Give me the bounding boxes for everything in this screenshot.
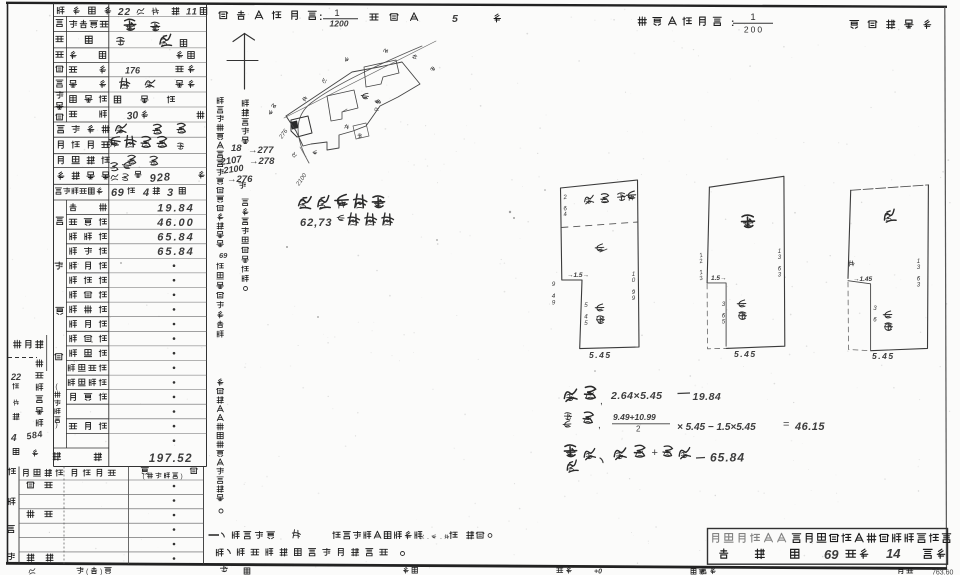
svg-text:(: ( (86, 569, 89, 575)
svg-text:→276: →276 (227, 174, 253, 185)
svg-text:): ) (55, 422, 57, 429)
svg-text::: : (319, 11, 323, 23)
svg-text:5: 5 (584, 302, 588, 309)
svg-text:9: 9 (632, 295, 636, 302)
svg-text:46.00: 46.00 (156, 217, 195, 229)
svg-text:1.5→: 1.5→ (711, 275, 727, 282)
svg-text:69: 69 (219, 251, 228, 260)
svg-text:× 5.45 − 1.5×5.45: × 5.45 − 1.5×5.45 (677, 422, 756, 433)
svg-text:5: 5 (584, 320, 588, 327)
svg-text:62,73: 62,73 (300, 217, 333, 229)
svg-text:276: 276 (278, 128, 290, 141)
svg-text:6: 6 (873, 317, 877, 324)
svg-text:46.15: 46.15 (794, 421, 825, 433)
svg-text:69: 69 (824, 547, 839, 562)
svg-text:65.84: 65.84 (157, 246, 195, 258)
svg-text:5.45: 5.45 (734, 349, 757, 359)
svg-text:,: , (600, 396, 603, 407)
svg-text:176: 176 (125, 66, 141, 76)
svg-text:3: 3 (917, 264, 921, 271)
svg-text:22: 22 (10, 372, 21, 382)
svg-text:4: 4 (142, 187, 149, 199)
svg-text:5.45: 5.45 (872, 351, 895, 361)
svg-text:1: 1 (750, 12, 755, 23)
svg-text:65.84: 65.84 (710, 451, 745, 465)
svg-text:3: 3 (778, 254, 782, 261)
svg-text:1: 1 (334, 8, 339, 19)
svg-text:763.60: 763.60 (932, 570, 954, 575)
svg-text:5: 5 (452, 13, 458, 25)
svg-text:5: 5 (722, 319, 726, 326)
svg-text:19.84: 19.84 (693, 391, 722, 403)
svg-text:65.84: 65.84 (157, 232, 195, 244)
svg-text:+: + (652, 447, 658, 459)
svg-text:→278: →278 (249, 156, 275, 167)
svg-text:0: 0 (632, 277, 636, 284)
svg-text:9: 9 (552, 281, 556, 288)
svg-text:69: 69 (111, 187, 125, 199)
svg-text:1200: 1200 (330, 19, 349, 29)
svg-text:.: . (440, 534, 442, 541)
svg-text:18: 18 (231, 143, 242, 154)
svg-text:.: . (427, 534, 429, 541)
svg-text:4: 4 (10, 433, 17, 444)
svg-text:): ) (100, 569, 102, 575)
svg-text:→277: →277 (248, 145, 274, 156)
svg-text:,: , (598, 420, 601, 431)
svg-text:584: 584 (26, 429, 44, 442)
svg-text:3: 3 (167, 187, 173, 199)
svg-text:30: 30 (126, 109, 139, 122)
svg-text:(: ( (143, 473, 146, 480)
svg-text:3: 3 (778, 272, 782, 279)
svg-text:9: 9 (552, 299, 556, 306)
svg-text:9.49+10.99: 9.49+10.99 (613, 412, 656, 422)
svg-text:(: ( (55, 384, 58, 391)
svg-text:2.64×5.45: 2.64×5.45 (610, 390, 663, 402)
svg-text:=: = (783, 419, 789, 431)
svg-text:+0: +0 (594, 569, 602, 575)
svg-text:22: 22 (117, 7, 131, 18)
svg-text:2: 2 (636, 425, 641, 434)
svg-text:2100: 2100 (295, 172, 309, 188)
svg-text:): ) (181, 473, 183, 480)
svg-text:11: 11 (186, 7, 198, 18)
svg-text:3: 3 (917, 282, 921, 289)
svg-text:14: 14 (886, 546, 901, 561)
svg-text:3: 3 (699, 275, 704, 282)
svg-text:928: 928 (149, 171, 171, 185)
svg-text:→1.5→: →1.5→ (567, 272, 589, 279)
svg-text:2: 2 (562, 194, 568, 202)
svg-text:3: 3 (722, 301, 726, 308)
svg-text:5.45: 5.45 (589, 350, 612, 360)
svg-text:19.84: 19.84 (157, 202, 195, 214)
svg-text:197.52: 197.52 (149, 453, 193, 465)
svg-text:2: 2 (698, 258, 704, 265)
svg-text:200: 200 (744, 25, 764, 35)
svg-text:3: 3 (873, 305, 877, 312)
svg-text:→1.45: →1.45 (853, 276, 873, 283)
